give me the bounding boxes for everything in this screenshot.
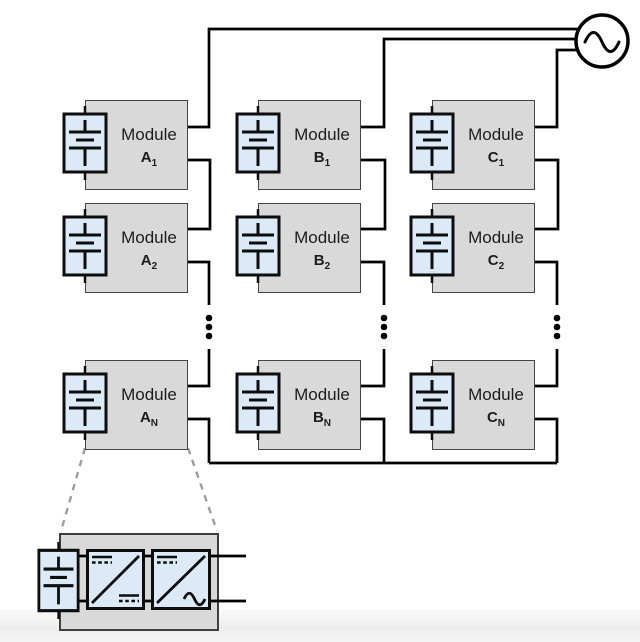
battery-icon: [37, 542, 80, 619]
battery-icon: [62, 106, 108, 180]
module-label: Module B2: [285, 228, 359, 277]
module-label: Module B1: [285, 125, 359, 174]
module-label: Module C1: [459, 125, 533, 174]
dc-ac-inverter-icon: [151, 549, 211, 610]
module-label: Module C2: [459, 228, 533, 277]
phase-c-wire: [535, 50, 578, 463]
battery-icon: [409, 209, 455, 283]
module-label: Module BN: [285, 385, 359, 434]
battery-icon: [235, 209, 281, 283]
battery-icon: [62, 366, 108, 440]
diagram-canvas: Module A1 Module A2 Module AN Module B1 …: [0, 0, 640, 642]
battery-icon: [62, 209, 108, 283]
dc-dc-converter-icon: [86, 549, 145, 610]
module-label: Module CN: [459, 385, 533, 434]
module-label: Module A1: [112, 125, 186, 174]
battery-icon: [409, 106, 455, 180]
battery-icon: [235, 106, 281, 180]
ac-source-icon: [576, 15, 628, 67]
vertical-ellipsis: [206, 315, 561, 340]
module-label: Module A2: [112, 228, 186, 277]
module-label: Module AN: [112, 385, 186, 434]
battery-icon: [235, 366, 281, 440]
battery-icon: [409, 366, 455, 440]
callout-dashed-lines: [61, 448, 217, 531]
